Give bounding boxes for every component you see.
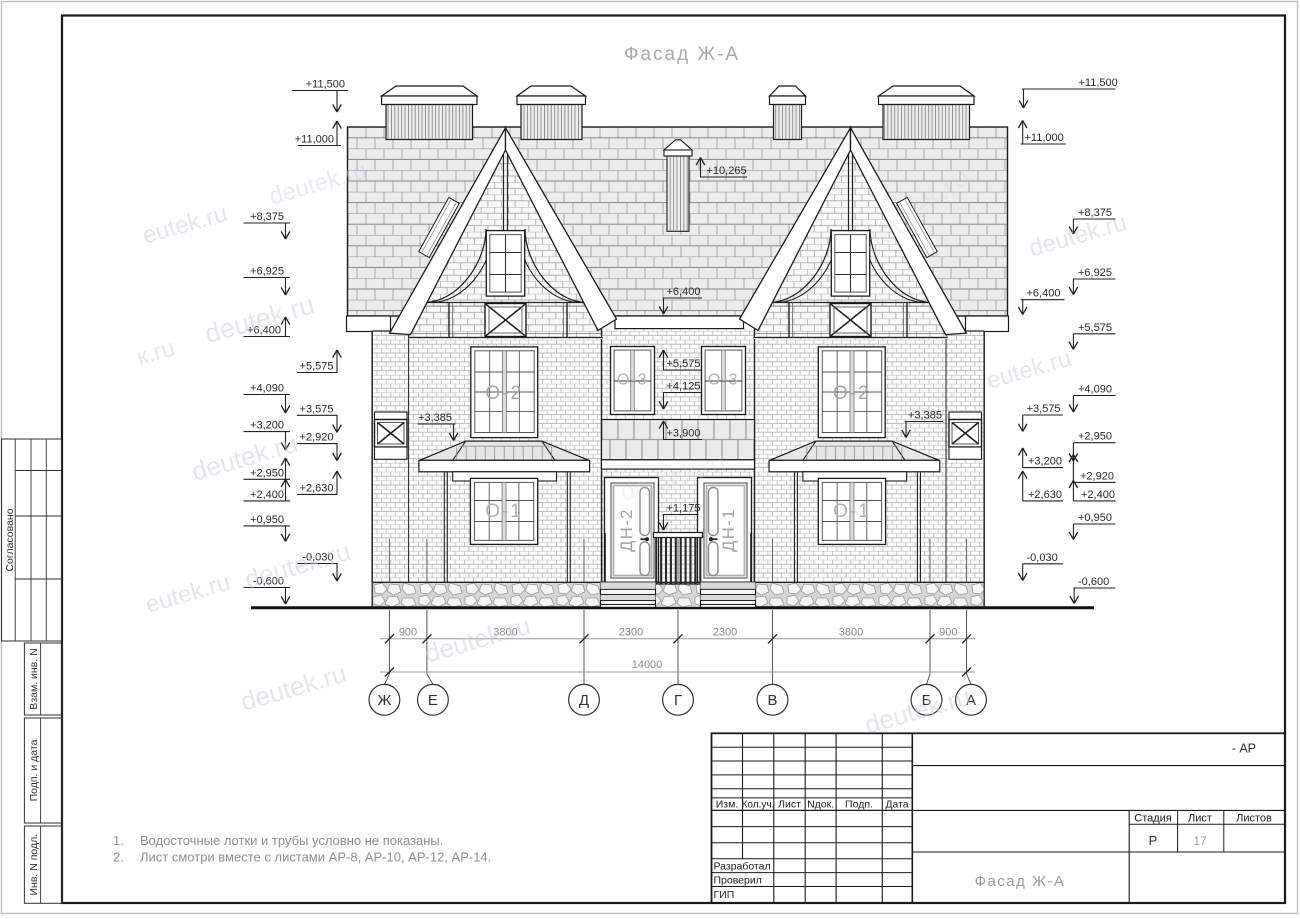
svg-text:Взам. инв. N: Взам. инв. N [28, 648, 40, 709]
svg-text:+2,400: +2,400 [1081, 489, 1115, 501]
svg-text:Дата: Дата [885, 799, 908, 811]
svg-text:+3,900: +3,900 [667, 428, 701, 440]
svg-text:+6,400: +6,400 [1027, 288, 1061, 300]
svg-text:+2,920: +2,920 [1080, 470, 1114, 482]
svg-text:3800: 3800 [839, 626, 863, 638]
svg-text:+3,200: +3,200 [1028, 456, 1062, 468]
svg-text:+11,000: +11,000 [1025, 132, 1064, 144]
svg-text:О-2: О-2 [833, 383, 871, 404]
svg-text:В: В [767, 692, 777, 709]
svg-text:Подп.: Подп. [845, 799, 873, 811]
svg-text:+4,090: +4,090 [1078, 384, 1112, 396]
svg-text:Водосточные лотки и трубы усло: Водосточные лотки и трубы условно не пок… [140, 833, 443, 848]
svg-text:О-2: О-2 [485, 383, 523, 404]
svg-text:+2,920: +2,920 [300, 432, 334, 444]
svg-text:+3,385: +3,385 [908, 410, 942, 422]
svg-text:Фасад Ж-А: Фасад Ж-А [975, 873, 1066, 890]
svg-text:+1,175: +1,175 [667, 503, 701, 515]
svg-text:17: 17 [1193, 834, 1207, 848]
svg-text:+6,925: +6,925 [1078, 267, 1112, 279]
svg-text:О-3: О-3 [708, 372, 739, 389]
svg-text:900: 900 [399, 626, 417, 638]
svg-text:2300: 2300 [619, 626, 643, 638]
svg-text:ДН-1: ДН-1 [720, 508, 738, 552]
svg-text:+3,575: +3,575 [1027, 403, 1061, 415]
svg-text:+2,400: +2,400 [250, 489, 284, 501]
svg-text:+10,265: +10,265 [707, 165, 747, 177]
svg-text:+0,950: +0,950 [250, 514, 284, 526]
svg-text:+6,925: +6,925 [250, 266, 284, 278]
svg-text:- АР: - АР [1232, 742, 1256, 756]
svg-text:+8,375: +8,375 [250, 211, 284, 223]
svg-text:Р: Р [1149, 833, 1158, 848]
svg-text:Лист: Лист [1188, 813, 1212, 825]
svg-text:ДН-2: ДН-2 [618, 508, 636, 552]
svg-text:+0,950: +0,950 [1078, 512, 1112, 524]
svg-text:О-3: О-3 [617, 372, 648, 389]
svg-text:Листов: Листов [1236, 813, 1272, 825]
svg-text:ГИП: ГИП [714, 889, 735, 901]
svg-text:14000: 14000 [632, 659, 663, 671]
svg-text:2.: 2. [113, 850, 124, 865]
svg-text:+11,000: +11,000 [295, 134, 334, 146]
svg-text:+2,630: +2,630 [300, 482, 334, 494]
svg-text:+4,090: +4,090 [250, 383, 284, 395]
svg-text:-0,030: -0,030 [1027, 552, 1058, 564]
svg-text:Лист смотри вместе с листами А: Лист смотри вместе с листами АР-8, АР-10… [140, 850, 491, 865]
svg-text:+5,575: +5,575 [667, 358, 701, 370]
svg-text:Изм.: Изм. [716, 799, 739, 811]
svg-text:Кол.уч.: Кол.уч. [742, 800, 775, 811]
svg-text:2300: 2300 [713, 626, 737, 638]
svg-text:О-1: О-1 [833, 501, 871, 522]
svg-text:Е: Е [428, 692, 438, 709]
svg-text:900: 900 [939, 626, 957, 638]
svg-text:Д: Д [579, 692, 589, 709]
svg-text:+3,200: +3,200 [250, 420, 284, 432]
svg-text:+3,575: +3,575 [300, 403, 334, 415]
svg-text:Согласовано: Согласовано [4, 508, 16, 571]
svg-text:+11,500: +11,500 [306, 79, 345, 91]
svg-text:Разработал: Разработал [714, 861, 771, 873]
svg-text:+11,500: +11,500 [1079, 77, 1118, 89]
svg-text:+2,630: +2,630 [1028, 489, 1062, 501]
svg-text:+6,400: +6,400 [667, 286, 701, 298]
svg-text:Стадия: Стадия [1134, 813, 1172, 825]
svg-text:+2,950: +2,950 [1078, 431, 1112, 443]
svg-text:Подп. и дата: Подп. и дата [28, 739, 40, 801]
svg-text:Ж: Ж [377, 692, 391, 709]
svg-text:+5,575: +5,575 [300, 361, 334, 373]
svg-text:+3,385: +3,385 [418, 412, 452, 424]
svg-text:Проверил: Проверил [714, 875, 762, 887]
svg-text:Г: Г [674, 692, 682, 709]
svg-text:-0,600: -0,600 [1078, 576, 1109, 588]
svg-text:Nдок.: Nдок. [807, 799, 834, 811]
svg-text:Инв. N подл.: Инв. N подл. [28, 834, 40, 896]
svg-text:О-1: О-1 [485, 501, 523, 522]
svg-text:1.: 1. [113, 833, 124, 848]
svg-text:Лист: Лист [778, 799, 801, 811]
svg-text:+5,575: +5,575 [1078, 322, 1112, 334]
svg-text:Фасад Ж-А: Фасад Ж-А [624, 44, 740, 65]
svg-text:+4,125: +4,125 [667, 381, 701, 393]
